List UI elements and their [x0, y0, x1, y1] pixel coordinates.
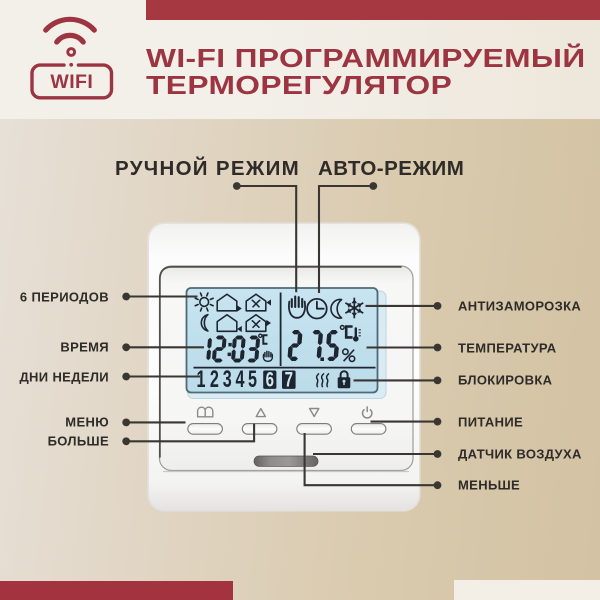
- svg-text:6: 6: [266, 367, 274, 391]
- svg-text:4: 4: [236, 366, 245, 393]
- svg-text:WIFI: WIFI: [50, 71, 93, 93]
- svg-text:1: 1: [197, 366, 206, 393]
- svg-text:5: 5: [248, 366, 257, 393]
- svg-text:3: 3: [223, 366, 232, 393]
- svg-text:7: 7: [285, 367, 293, 391]
- svg-text:2: 2: [210, 366, 219, 393]
